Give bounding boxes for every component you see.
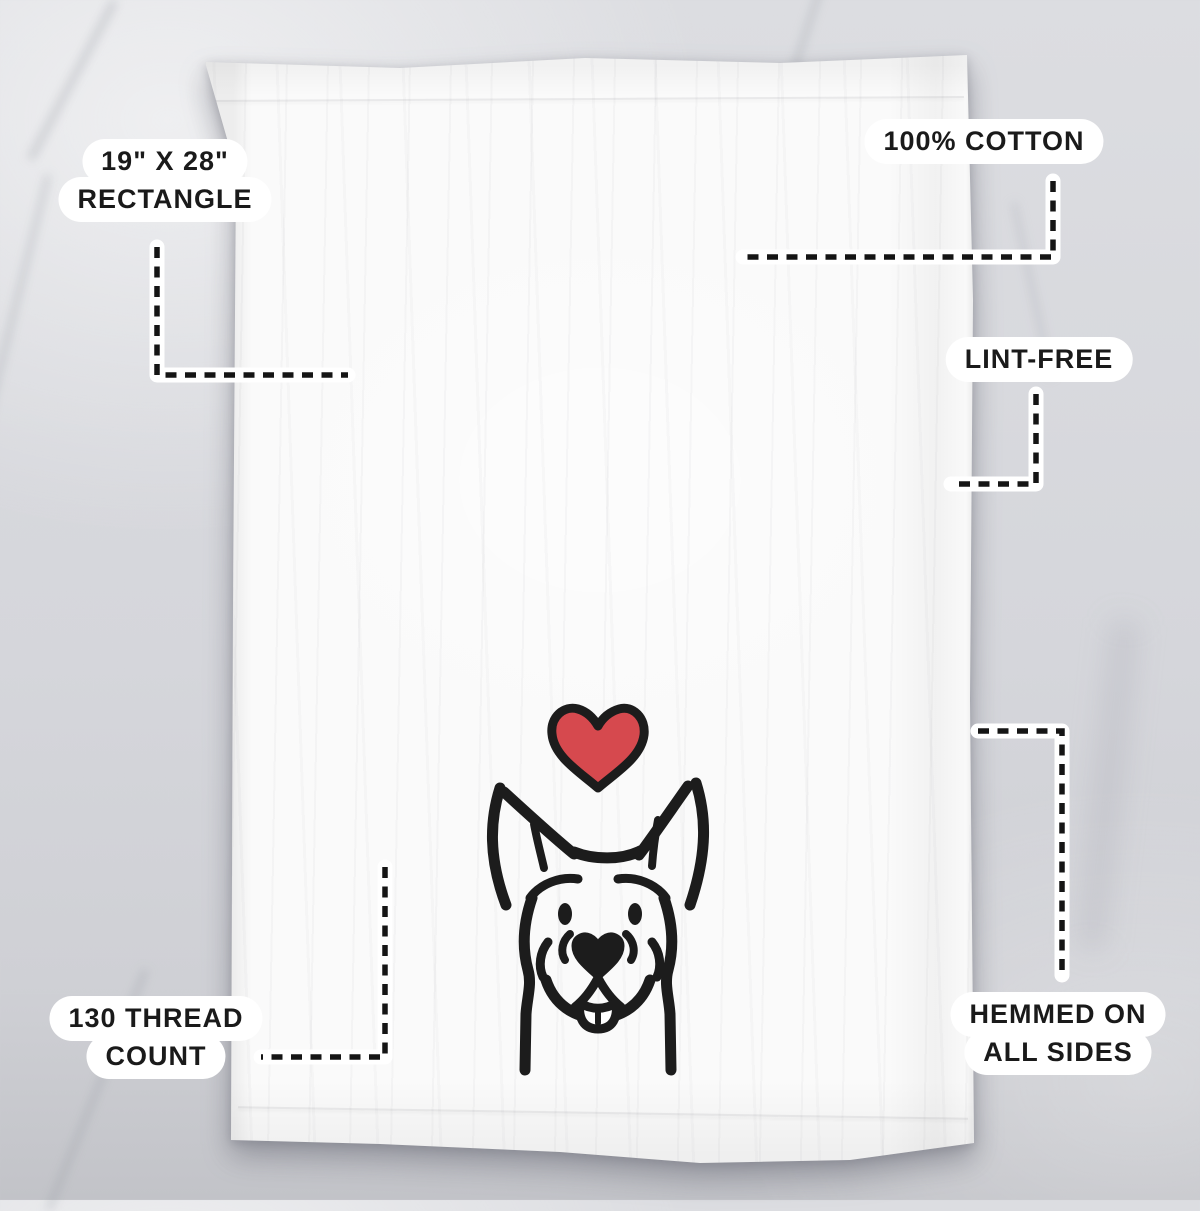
right-muzzle-line <box>626 934 634 960</box>
left-eyebrow <box>530 878 578 898</box>
head-top <box>574 851 640 858</box>
thread-count-callout-line2: COUNT <box>86 1034 225 1079</box>
right-ear-accent <box>652 820 658 866</box>
right-ear-inner <box>639 786 688 855</box>
right-ear-outer <box>690 783 704 905</box>
left-cheek-neck <box>524 898 532 1070</box>
hemmed-callout: HEMMED ON ALL SIDES <box>951 992 1166 1075</box>
thread-count-callout: 130 THREAD COUNT <box>49 996 262 1079</box>
size-callout: 19" X 28" RECTANGLE <box>59 139 272 222</box>
left-muzzle-line <box>562 934 570 960</box>
dog-face-artwork <box>492 783 703 1070</box>
towel-top-hem <box>212 96 964 102</box>
cotton-callout-line1: 100% COTTON <box>864 119 1103 164</box>
lint-free-callout: LINT-FREE <box>946 337 1133 382</box>
right-eye <box>628 903 642 925</box>
cotton-callout: 100% COTTON <box>864 119 1103 164</box>
heart-nose <box>574 935 622 978</box>
hemmed-callout-line2: ALL SIDES <box>964 1030 1152 1075</box>
size-callout-line2: RECTANGLE <box>59 177 272 222</box>
right-cheek-neck <box>664 898 672 1070</box>
dog-heart-artwork <box>478 692 722 1084</box>
lint-free-callout-line1: LINT-FREE <box>946 337 1133 382</box>
towel-bottom-hem <box>238 1106 968 1119</box>
heart-icon <box>552 708 644 788</box>
left-cheek-accent <box>540 942 548 977</box>
right-cheek-accent <box>652 942 660 977</box>
left-ear-outer <box>492 788 506 905</box>
right-eyebrow <box>618 878 666 898</box>
left-eye <box>558 903 572 925</box>
